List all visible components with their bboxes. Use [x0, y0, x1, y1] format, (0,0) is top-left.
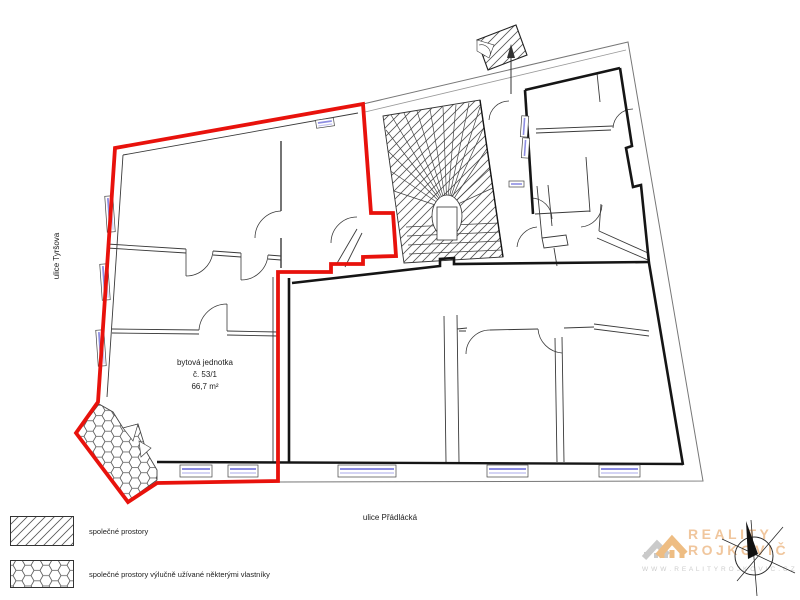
- legend-label-exclusive: společné prostory výlučně užívané někter…: [89, 570, 270, 579]
- stairwell-common-area: [383, 100, 503, 263]
- unit-label-name: bytová jednotka: [150, 357, 260, 369]
- legend-item-common: společné prostory: [10, 516, 148, 546]
- street-label-bottom: ulice Přádlácká: [330, 512, 450, 524]
- unit-label-area: 66,7 m²: [150, 381, 260, 393]
- bottom-windows: [180, 465, 640, 477]
- brand-line-2: ROJKOVIČ: [688, 541, 789, 558]
- house-roofs-icon: [644, 540, 685, 558]
- entrance-vestibule: [477, 25, 527, 70]
- brand-website: W W W . R E A L I T Y R O J K O V I C . …: [642, 566, 795, 573]
- hex-hatch-swatch: [10, 560, 74, 588]
- floorplan-drawing: [0, 0, 800, 600]
- brand-watermark: REALITY ROJKOVIČ W W W . R E A L I T Y R…: [640, 520, 800, 600]
- unit-label-number: č. 53/1: [150, 369, 260, 381]
- unit-label: bytová jednotka č. 53/1 66,7 m²: [150, 357, 260, 393]
- brand-watermark-graphic: REALITY ROJKOVIČ W W W . R E A L I T Y R…: [640, 520, 800, 600]
- unit-interior-walls: [107, 113, 362, 462]
- brand-line-1: REALITY: [688, 526, 772, 542]
- floorplan-page: bytová jednotka č. 53/1 66,7 m² ulice Ty…: [0, 0, 800, 600]
- diagonal-hatch-swatch: [10, 516, 74, 546]
- legend-item-exclusive: společné prostory výlučně užívané někter…: [10, 560, 270, 588]
- street-label-left: ulice Tyršova: [51, 213, 63, 299]
- legend-label-common: společné prostory: [89, 527, 148, 536]
